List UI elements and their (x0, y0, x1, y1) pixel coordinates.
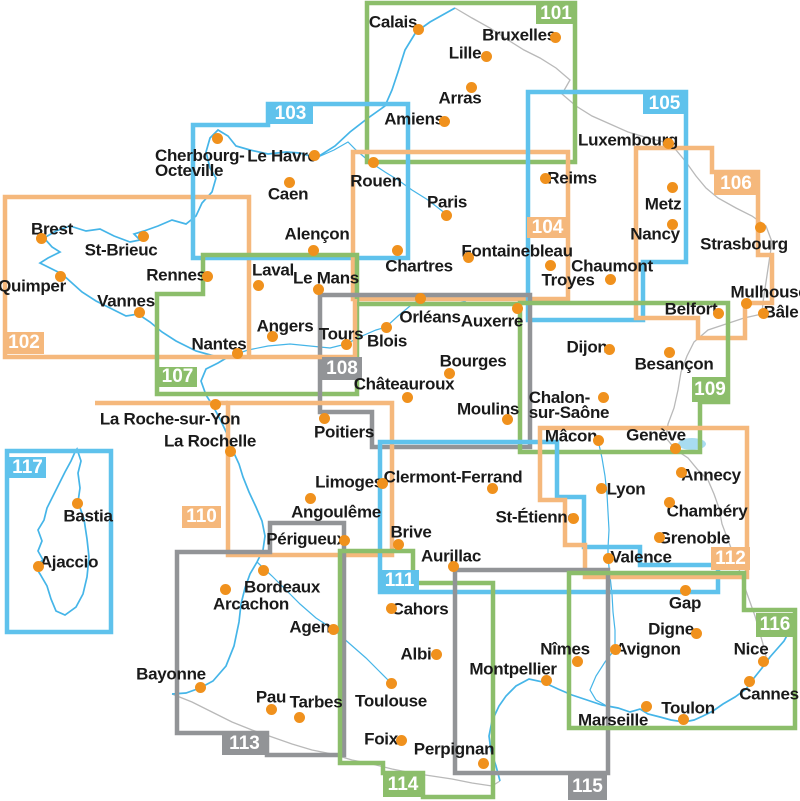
city-label-strasbourg: Strasbourg (700, 237, 788, 252)
city-label-foix: Foix (364, 732, 398, 747)
city-label-bordeaux: Bordeaux (244, 580, 320, 595)
city-label-cahors: Cahors (392, 602, 449, 617)
city-dot-perigueux (339, 535, 350, 546)
city-label-digne: Digne (648, 622, 694, 637)
city-label-nimes: Nîmes (540, 642, 590, 657)
city-label-caen: Caen (268, 187, 308, 202)
city-dot-st-etienne (568, 513, 579, 524)
sheet-label-102[interactable]: 102 (4, 332, 44, 354)
city-label-perigueux: Périgueux (266, 532, 346, 547)
city-label-metz: Metz (645, 197, 682, 212)
city-dot-digne (691, 628, 702, 639)
city-label-avignon: Avignon (615, 642, 680, 657)
city-dot-fontainebleau (463, 252, 474, 263)
city-label-bale: Bâle (764, 305, 799, 320)
city-label-brive: Brive (390, 525, 431, 540)
city-dot-ajaccio (33, 561, 44, 572)
sheet-label-112[interactable]: 112 (711, 547, 750, 570)
city-dot-chartres (392, 245, 403, 256)
city-label-montpellier: Montpellier (469, 662, 556, 677)
sheet-outline-113[interactable] (177, 523, 344, 755)
city-label-st-brieuc: St-Brieuc (85, 243, 158, 258)
city-label-toulouse: Toulouse (355, 694, 427, 709)
city-dot-cannes (744, 676, 755, 687)
city-label-bastia: Bastia (63, 509, 112, 524)
city-label-le-havre: Le Havre (247, 149, 316, 164)
city-dot-bastia (72, 498, 83, 509)
city-label-la-rochelle: La Rochelle (164, 434, 256, 449)
city-dot-limoges (377, 478, 388, 489)
city-dot-cherbourg-octeville (212, 133, 223, 144)
city-dot-lille (481, 51, 492, 62)
city-label-orleans: Orléans (399, 310, 460, 325)
sheet-label-114[interactable]: 114 (383, 773, 423, 797)
city-dot-annecy (676, 467, 687, 478)
sheet-label-104[interactable]: 104 (527, 217, 568, 238)
city-label-macon: Mâcon (545, 429, 597, 444)
city-dot-amiens (439, 116, 450, 127)
city-dot-dijon (604, 344, 615, 355)
city-dot-clermont-ferrand (487, 483, 498, 494)
city-dot-nancy (667, 219, 678, 230)
city-label-chateauroux: Châteauroux (354, 377, 455, 392)
city-dot-metz (667, 182, 678, 193)
city-dot-tarbes (294, 712, 305, 723)
city-label-auxerre: Auxerre (461, 314, 523, 329)
city-label-limoges: Limoges (315, 475, 383, 490)
city-label-toulon: Toulon (661, 701, 715, 716)
city-dot-bale (758, 308, 769, 319)
sheet-label-101[interactable]: 101 (536, 3, 576, 24)
sheet-label-111[interactable]: 111 (380, 570, 419, 592)
city-dot-chalon-sur-saone (598, 392, 609, 403)
city-label-vannes: Vannes (97, 294, 155, 309)
city-dot-tours (341, 339, 352, 350)
city-dot-brive (393, 539, 404, 550)
city-label-alencon: Alençon (285, 227, 350, 242)
city-label-angouleme: Angoulême (291, 505, 381, 520)
city-label-besancon: Besançon (635, 357, 714, 372)
city-label-perpignan: Perpignan (414, 742, 494, 757)
city-dot-besancon (664, 347, 675, 358)
city-dot-strasbourg (755, 222, 766, 233)
sheet-label-105[interactable]: 105 (643, 93, 686, 114)
city-label-poitiers: Poitiers (314, 425, 374, 440)
city-label-rennes: Rennes (146, 268, 206, 283)
city-label-tarbes: Tarbes (290, 695, 343, 710)
city-label-st-etienne: St-Étienne (495, 510, 576, 525)
city-label-line: sur-Saône (529, 405, 609, 420)
city-dot-valence (603, 553, 614, 564)
city-dot-nice (758, 656, 769, 667)
city-dot-chaumont (605, 274, 616, 285)
city-dot-arcachon (220, 584, 231, 595)
city-label-fontainebleau: Fontainebleau (461, 244, 572, 259)
city-label-calais: Calais (369, 15, 417, 30)
city-label-bayonne: Bayonne (136, 667, 206, 682)
city-dot-poitiers (319, 413, 330, 424)
city-dot-geneve (670, 443, 681, 454)
city-label-paris: Paris (427, 195, 467, 210)
city-dot-agen (328, 624, 339, 635)
city-dot-le-mans (313, 284, 324, 295)
sheet-label-103[interactable]: 103 (268, 104, 313, 124)
city-label-grenoble: Grenoble (658, 531, 730, 546)
sheet-label-115[interactable]: 115 (568, 773, 607, 800)
city-label-blois: Blois (367, 334, 407, 349)
city-dot-laval (253, 280, 264, 291)
city-dot-la-rochelle (225, 446, 236, 457)
city-label-la-roche-sur-yon: La Roche-sur-Yon (100, 412, 240, 427)
city-label-pau: Pau (256, 690, 286, 705)
sheet-label-109[interactable]: 109 (692, 377, 728, 402)
city-label-mulhouse: Mulhouse (731, 285, 800, 300)
city-dot-chateauroux (402, 392, 413, 403)
city-label-ajaccio: Ajaccio (40, 555, 98, 570)
city-dot-marseille (641, 701, 652, 712)
city-dot-foix (396, 735, 407, 746)
city-dot-quimper (55, 271, 66, 282)
city-label-dijon: Dijon (567, 340, 608, 355)
city-dot-toulouse (386, 678, 397, 689)
city-dot-calais (413, 24, 424, 35)
city-label-arcachon: Arcachon (213, 597, 289, 612)
sheet-label-117[interactable]: 117 (9, 457, 46, 478)
city-dot-bordeaux (258, 565, 269, 576)
city-dot-angers (267, 331, 278, 342)
city-dot-nimes (572, 656, 583, 667)
city-dot-rouen (368, 157, 379, 168)
city-label-lille: Lille (449, 46, 482, 61)
city-label-troyes: Troyes (541, 273, 594, 288)
city-label-nice: Nice (734, 642, 769, 657)
city-dot-avignon (610, 644, 621, 655)
sheet-label-106[interactable]: 106 (714, 172, 758, 195)
city-label-chambery: Chambéry (667, 504, 748, 519)
city-dot-bruxelles (550, 32, 561, 43)
city-dot-lyon (596, 483, 607, 494)
city-label-geneve: Genève (626, 428, 686, 443)
city-dot-macon (593, 435, 604, 446)
city-dot-toulon (678, 714, 689, 725)
city-label-chartres: Chartres (385, 259, 453, 274)
city-dot-rennes (202, 271, 213, 282)
sheet-label-110[interactable]: 110 (182, 506, 221, 528)
city-dot-grenoble (654, 532, 665, 543)
city-dot-reims (540, 173, 551, 184)
city-label-arras: Arras (439, 91, 482, 106)
city-dot-chambery (664, 497, 675, 508)
city-label-marseille: Marseille (578, 713, 648, 728)
city-label-agen: Agen (289, 620, 330, 635)
city-label-bruxelles: Bruxelles (482, 28, 556, 43)
city-dot-la-roche-sur-yon (210, 399, 221, 410)
city-dot-le-havre (309, 150, 320, 161)
sheet-label-107[interactable]: 107 (158, 367, 197, 387)
city-label-belfort: Belfort (665, 302, 718, 317)
city-dot-brest (36, 233, 47, 244)
city-dot-belfort (713, 308, 724, 319)
city-dot-cahors (386, 603, 397, 614)
sheet-label-113[interactable]: 113 (222, 733, 267, 755)
city-label-clermont-ferrand: Clermont-Ferrand (384, 470, 523, 485)
city-label-amiens: Amiens (384, 112, 444, 127)
city-dot-angouleme (305, 493, 316, 504)
city-dot-vannes (134, 307, 145, 318)
city-dot-gap (680, 585, 691, 596)
city-dot-nantes (232, 348, 243, 359)
city-label-annecy: Annecy (681, 468, 741, 483)
city-label-albi: Albi (401, 647, 432, 662)
city-label-rouen: Rouen (350, 174, 401, 189)
city-dot-troyes (545, 260, 556, 271)
city-dot-perpignan (478, 758, 489, 769)
city-dot-auxerre (512, 303, 523, 314)
city-dot-luxembourg (663, 138, 674, 149)
city-label-chalon-sur-saone: Chalon-sur-Saône (529, 390, 609, 420)
city-label-tours: Tours (319, 327, 363, 342)
city-label-lyon: Lyon (607, 482, 646, 497)
sheet-index-map: 1011021031041051061071081091101111121131… (0, 0, 800, 801)
city-dot-aurillac (448, 561, 459, 572)
city-label-cannes: Cannes (739, 687, 799, 702)
city-dot-caen (284, 177, 295, 188)
city-dot-st-brieuc (138, 231, 149, 242)
city-dot-blois (381, 322, 392, 333)
city-dot-arras (466, 82, 477, 93)
city-label-gap: Gap (669, 596, 701, 611)
city-dot-mulhouse (741, 298, 752, 309)
sheet-label-116[interactable]: 116 (756, 613, 794, 637)
city-dot-paris (441, 210, 452, 221)
city-dot-bourges (444, 368, 455, 379)
city-label-reims: Reims (547, 171, 597, 186)
city-label-le-mans: Le Mans (293, 271, 359, 286)
city-dot-bayonne (195, 682, 206, 693)
city-label-cherbourg-octeville: Cherbourg-Octeville (155, 148, 245, 178)
city-dot-albi (431, 649, 442, 660)
city-label-laval: Laval (252, 263, 294, 278)
city-dot-montpellier (541, 675, 552, 686)
city-label-valence: Valence (610, 550, 671, 565)
city-label-angers: Angers (257, 319, 314, 334)
city-label-line: Octeville (155, 163, 245, 178)
city-label-bourges: Bourges (440, 354, 507, 369)
city-dot-alencon (308, 245, 319, 256)
city-dot-moulins (502, 414, 513, 425)
city-dot-orleans (415, 293, 426, 304)
city-dot-pau (266, 704, 277, 715)
